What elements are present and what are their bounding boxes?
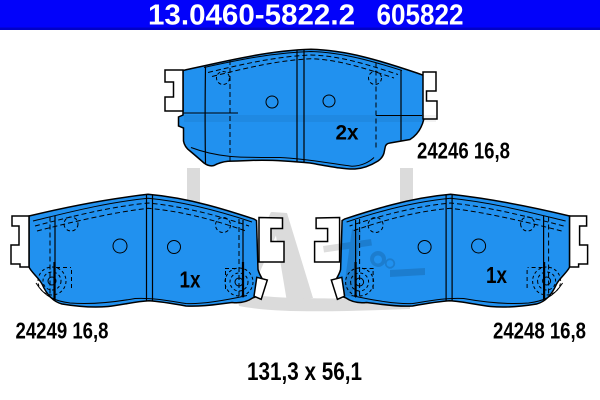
svg-text:13.0460-5822.2: 13.0460-5822.2 bbox=[148, 0, 355, 31]
svg-text:131,3 x 56,1: 131,3 x 56,1 bbox=[247, 358, 362, 386]
svg-text:605822: 605822 bbox=[377, 0, 464, 31]
svg-text:1x: 1x bbox=[180, 267, 201, 293]
svg-text:2x: 2x bbox=[336, 122, 359, 145]
svg-text:24249 16,8: 24249 16,8 bbox=[16, 318, 109, 344]
svg-text:1x: 1x bbox=[486, 262, 507, 288]
svg-text:24248 16,8: 24248 16,8 bbox=[493, 318, 586, 344]
svg-text:24246 16,8: 24246 16,8 bbox=[417, 138, 510, 164]
